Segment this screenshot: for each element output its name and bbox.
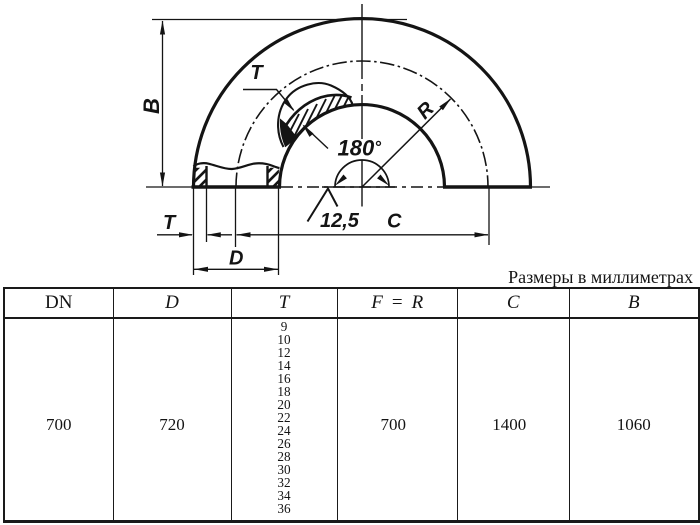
svg-text:R: R: [413, 97, 439, 123]
svg-text:C: C: [387, 211, 402, 233]
svg-text:12,5: 12,5: [320, 210, 360, 232]
svg-text:180°: 180°: [338, 136, 382, 161]
svg-text:T: T: [163, 212, 177, 234]
svg-text:D: D: [229, 248, 243, 270]
svg-text:B: B: [139, 98, 164, 114]
svg-text:T: T: [250, 62, 264, 84]
